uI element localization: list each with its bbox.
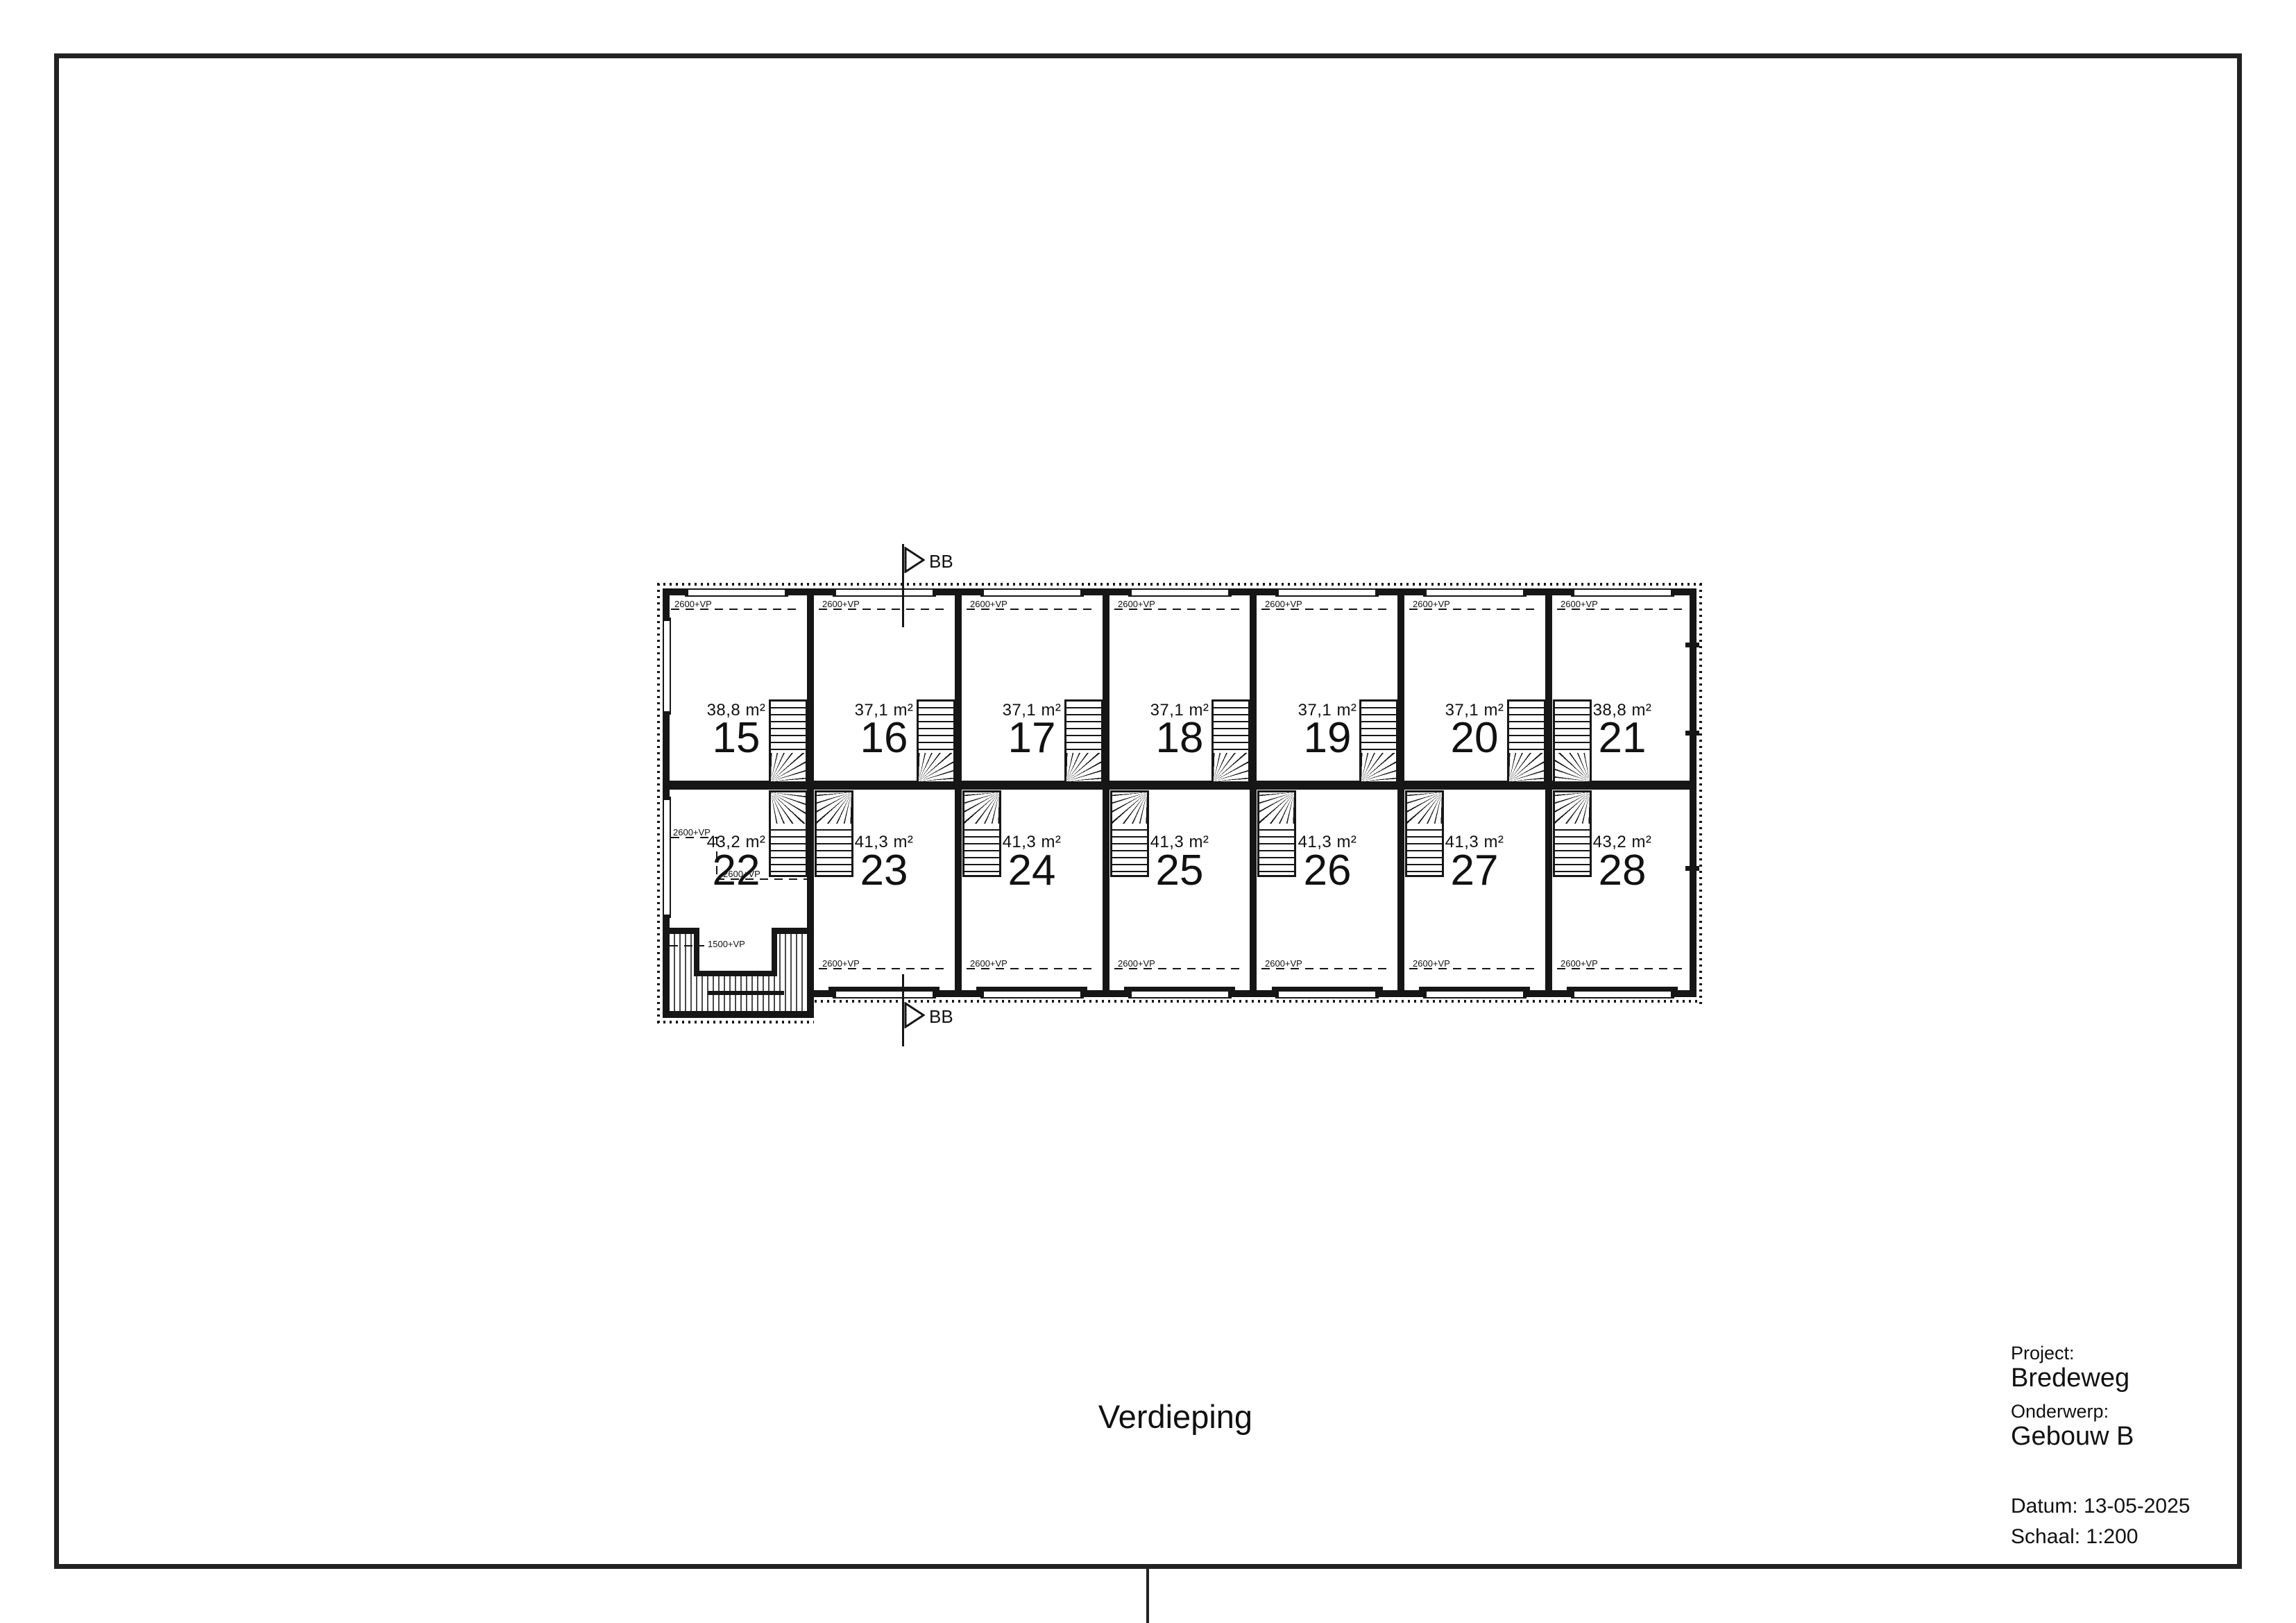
titleblock-project-value: Bredeweg	[2011, 1364, 2129, 1393]
unit-number-label: 22	[660, 849, 813, 892]
stair-winder	[1259, 792, 1294, 824]
ceiling-height-label: 2600+VP	[1411, 959, 1452, 968]
stair-winder	[1407, 792, 1442, 824]
stair-winder	[771, 792, 806, 824]
stair-winder	[1555, 792, 1590, 824]
exterior-hatch-top	[657, 583, 1702, 586]
section-marker-flag-icon	[904, 1002, 925, 1028]
unit-number-label: 21	[1546, 717, 1699, 760]
titleblock-project-label: Project:	[2011, 1343, 2075, 1364]
party-wall	[955, 591, 962, 994]
door-symbol	[1272, 987, 1383, 992]
unit-number-label: 27	[1398, 849, 1551, 892]
unit-number-label: 24	[955, 849, 1108, 892]
party-wall	[1250, 591, 1257, 994]
stair-winder	[817, 792, 851, 824]
void-wall-right	[772, 933, 777, 976]
unit-number-label: 20	[1398, 717, 1551, 760]
door-symbol	[1567, 987, 1678, 992]
unit-number-label: 18	[1103, 717, 1256, 760]
exterior-wall-right	[1690, 588, 1697, 997]
window-tick	[1685, 643, 1699, 647]
unit-number-label: 17	[955, 717, 1108, 760]
window-symbol	[833, 588, 936, 597]
door-symbol	[976, 987, 1087, 992]
terrace-level-label: 1500+VP	[706, 940, 747, 949]
unit-number-label: 26	[1251, 849, 1404, 892]
party-wall	[807, 591, 814, 994]
ceiling-height-label: 2600+VP	[1411, 600, 1452, 609]
ceiling-height-label: 2600+VP	[820, 600, 862, 609]
exterior-hatch-left	[657, 584, 660, 1023]
ceiling-height-label: 2600+VP	[1116, 959, 1157, 968]
stair-winder	[1112, 792, 1147, 824]
door-symbol	[828, 987, 939, 992]
ceiling-height-label: 2600+VP	[1558, 959, 1600, 968]
section-marker-label: BB	[929, 552, 953, 570]
window-symbol	[1571, 588, 1674, 597]
drawing-sheet: 2600+VP 2600+VP 2600+VP 2600+VP 2600+VP …	[0, 0, 2296, 1623]
titleblock-scale: Schaal: 1:200	[2011, 1525, 2138, 1548]
unit-number-label: 28	[1546, 849, 1699, 892]
unit-number-label: 23	[808, 849, 960, 892]
exterior-hatch-terrace	[657, 1021, 814, 1023]
plan-title: Verdieping	[1044, 1397, 1307, 1436]
ceiling-height-label: 2600+VP	[672, 600, 714, 609]
stair-winder	[964, 792, 999, 824]
unit-number-label: 16	[808, 717, 960, 760]
unit-number-label: 15	[660, 717, 813, 760]
ceiling-height-label: 2600+VP	[1116, 600, 1157, 609]
ceiling-height-label: 2600+VP	[1558, 600, 1600, 609]
door-symbol	[1124, 987, 1235, 992]
fold-mark	[1146, 1569, 1149, 1623]
section-marker-label: BB	[929, 1008, 953, 1026]
titleblock-date: Datum: 13-05-2025	[2011, 1495, 2191, 1518]
terrace-wall-right	[807, 990, 814, 1018]
window-symbol	[663, 618, 671, 715]
void-wall-left	[694, 933, 699, 976]
window-symbol	[685, 588, 788, 597]
ceiling-height-label: 2600+VP	[968, 600, 1010, 609]
titleblock-subject-value: Gebouw B	[2011, 1422, 2134, 1452]
exterior-hatch-right	[1699, 584, 1702, 1004]
ceiling-height-label: 2600+VP	[968, 959, 1010, 968]
void-wall-bottom	[694, 971, 777, 976]
window-symbol	[1423, 588, 1527, 597]
party-wall	[1103, 591, 1109, 994]
window-symbol	[1128, 588, 1232, 597]
ceiling-height-label: 2600+VP	[1263, 959, 1304, 968]
unit-number-label: 19	[1251, 717, 1404, 760]
terrace-wing-wall-right	[772, 928, 810, 934]
party-wall	[1397, 591, 1404, 994]
window-symbol	[980, 588, 1084, 597]
ceiling-height-label: 2600+VP	[820, 959, 862, 968]
terrace-level-line	[670, 945, 704, 946]
titleblock-subject-label: Onderwerp:	[2011, 1402, 2109, 1422]
ceiling-height-label: 2600+VP	[1263, 600, 1304, 609]
party-wall	[1545, 591, 1552, 994]
floor-plan: 2600+VP 2600+VP 2600+VP 2600+VP 2600+VP …	[663, 588, 1697, 1046]
door-symbol	[1419, 987, 1530, 992]
terrace-wall-bottom	[663, 1011, 813, 1018]
exterior-hatch-bottom	[808, 1000, 1699, 1003]
window-symbol	[1275, 588, 1379, 597]
terrace-door-symbol	[708, 991, 784, 995]
section-marker-flag-icon	[904, 547, 925, 573]
unit-number-label: 25	[1103, 849, 1256, 892]
